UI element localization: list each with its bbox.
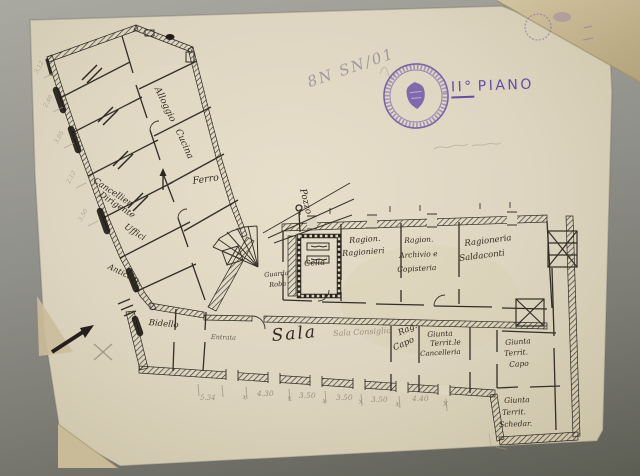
dimension-value: 3.50 bbox=[336, 394, 353, 402]
room-label-giunta-capo-line2: Territ. bbox=[504, 348, 528, 357]
room-label-cella: Cella bbox=[304, 259, 325, 268]
dimension-separator: x bbox=[287, 395, 292, 403]
room-label-giunta-schedario-line3: Schedar. bbox=[499, 420, 532, 429]
room-label-guardaroba-line1: Guarda bbox=[264, 270, 289, 279]
room-label-giunta-schedario-line2: Territ. bbox=[502, 408, 526, 416]
room-label-archivio-line1: Ragion. bbox=[404, 235, 434, 244]
dimension-value: 3.50 bbox=[371, 396, 388, 404]
dimension-separator: x bbox=[358, 397, 364, 406]
room-label-guardaroba-line2: Roba bbox=[269, 281, 286, 289]
dimension-value: 3.50 bbox=[299, 392, 316, 400]
room-label-archivio-line3: Copisteria bbox=[397, 264, 437, 274]
room-label-giunta-schedario-line1: Giunta bbox=[504, 396, 530, 404]
room-label-giunta-capo-line3: Capo bbox=[509, 360, 529, 369]
dimension-value: 5.34 bbox=[200, 395, 216, 402]
dimension-value: 4.40 bbox=[412, 395, 429, 403]
floor-stamp-label: II°PIANO bbox=[451, 77, 534, 96]
dimension-separator: x bbox=[395, 400, 401, 409]
dimension-separator: x bbox=[443, 400, 448, 409]
dimension-separator: x bbox=[242, 393, 248, 402]
floor-number: II° bbox=[451, 79, 474, 99]
scanned-floorplan-sheet: AlloggioCucinaFerroCancellier.DirigenteU… bbox=[0, 0, 640, 476]
room-label-giunta-cancelleria-line2: Territ.le bbox=[430, 338, 461, 347]
room-label-sala: Sala bbox=[271, 324, 318, 345]
room-label-entrata: Entrata bbox=[211, 334, 236, 341]
dimension-value: 4.30 bbox=[257, 390, 274, 398]
dimension-separator: x bbox=[321, 397, 327, 406]
floor-word: PIANO bbox=[477, 77, 534, 95]
room-label-giunta-capo-line1: Giunta bbox=[505, 337, 531, 346]
room-label-archivio-line2: Archivio e bbox=[399, 250, 438, 259]
room-label-bidello: Bidello bbox=[148, 319, 179, 330]
